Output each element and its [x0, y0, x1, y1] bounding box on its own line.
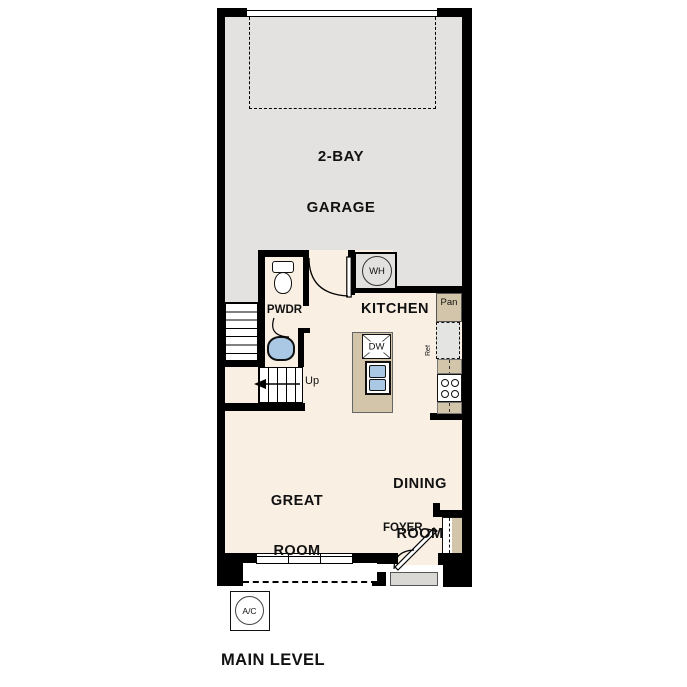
pantry: Pan — [436, 293, 462, 322]
garage-door — [243, 10, 440, 17]
wall — [437, 8, 472, 17]
wall — [217, 8, 225, 586]
dishwasher-label: DW — [368, 341, 386, 352]
kitchen-label: KITCHEN — [355, 301, 435, 318]
cooktop — [437, 374, 462, 402]
wall — [298, 328, 310, 333]
garage-floor-left — [225, 250, 258, 302]
floor-plan: WH Pan Ref DW A/C — [0, 0, 687, 687]
great-room-label: GREAT ROOM — [257, 460, 337, 593]
garage-door-swing-area — [249, 17, 436, 109]
refrigerator — [436, 322, 460, 359]
sink-icon — [267, 336, 295, 361]
wall — [462, 8, 472, 577]
dining-room-label: DINING ROOM — [380, 443, 460, 576]
garage-label-line2: GARAGE — [281, 199, 401, 216]
great-room-label-line1: GREAT — [257, 493, 337, 510]
sink-basin-icon — [369, 365, 386, 378]
garage-floor-right — [393, 250, 462, 286]
water-heater-label: WH — [369, 266, 385, 277]
foyer-label: FOYER — [383, 522, 423, 535]
kitchen-island: DW — [352, 332, 393, 413]
sink-basin-icon — [369, 379, 386, 391]
wall — [217, 553, 243, 586]
wall — [258, 250, 309, 257]
burner-icon — [451, 390, 459, 398]
burner-icon — [441, 390, 449, 398]
toilet-icon — [274, 272, 292, 294]
stairs-upper-run — [225, 302, 258, 361]
refrigerator-label: Ref — [425, 326, 435, 356]
wall — [303, 250, 309, 306]
kitchen-counter — [437, 402, 462, 414]
ac-label: A/C — [242, 606, 256, 616]
kitchen-counter — [437, 359, 462, 374]
water-heater-closet: WH — [350, 252, 397, 293]
pantry-label: Pan — [437, 297, 461, 308]
wall — [430, 413, 462, 420]
water-heater-icon: WH — [362, 256, 392, 286]
wall — [217, 403, 305, 411]
dining-room-label-line1: DINING — [380, 476, 460, 493]
ac-unit: A/C — [230, 591, 270, 631]
page-title: MAIN LEVEL — [221, 651, 325, 670]
wall — [298, 328, 304, 367]
burner-icon — [451, 379, 459, 387]
burner-icon — [441, 379, 449, 387]
wall — [393, 286, 462, 293]
great-room-label-line2: ROOM — [257, 543, 337, 560]
garage-label: 2-BAY GARAGE — [281, 113, 401, 251]
stairs-lower-run — [258, 367, 303, 403]
pwdr-label: PWDR — [262, 304, 307, 317]
ac-icon: A/C — [235, 596, 264, 625]
island-sink — [365, 361, 391, 395]
garage-label-line1: 2-BAY — [281, 148, 401, 165]
wall — [217, 8, 247, 17]
dishwasher: DW — [362, 334, 391, 359]
up-label: Up — [305, 375, 319, 387]
